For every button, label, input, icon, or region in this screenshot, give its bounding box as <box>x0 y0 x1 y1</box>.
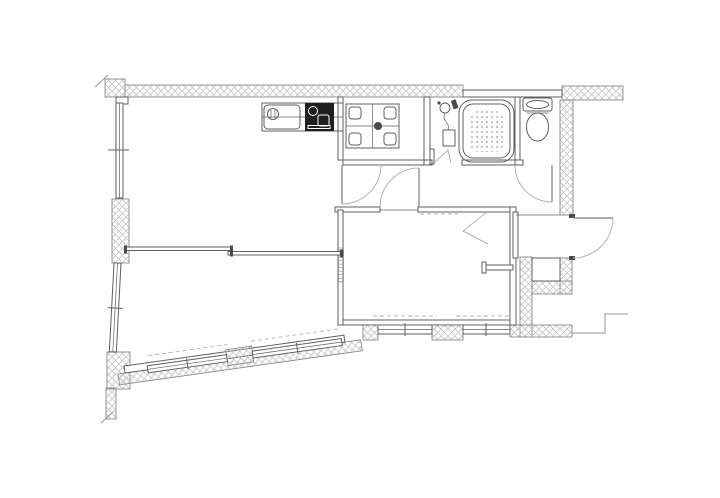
closet-chevron <box>463 212 488 244</box>
bath-mixer <box>443 130 455 146</box>
exterior-outline <box>572 314 628 333</box>
drain-icon <box>374 122 382 130</box>
wall-bottom-right-band <box>510 325 572 337</box>
entrance-door-swing <box>573 218 613 258</box>
wall-right-upper <box>560 100 573 215</box>
shower-head-icon <box>440 103 450 113</box>
sliding-track-2 <box>228 252 343 256</box>
wall-bedroom-north-east <box>418 207 513 212</box>
faucet-icon <box>268 109 279 120</box>
interior-doors <box>342 165 419 207</box>
wall-niche-bottom <box>532 281 572 294</box>
bathroom <box>430 99 514 164</box>
toilet-tank <box>523 98 552 111</box>
wall-genkan-edge <box>513 212 518 258</box>
wall-top-right-block <box>562 86 623 100</box>
wall-bedroom-south <box>343 320 510 325</box>
toilet-bowl <box>527 113 549 141</box>
wall-ldk-washroom <box>338 97 343 160</box>
wall-top-thin <box>463 90 562 97</box>
bathtub-antislip-dots <box>470 111 503 152</box>
shower-hose <box>444 113 449 130</box>
wall-stub-top-left <box>105 79 125 97</box>
wall-bath-toilet <box>515 97 520 165</box>
toilet-tank-basin <box>527 101 549 109</box>
wall-angled-mid-pier <box>226 346 254 365</box>
floor-plan-page <box>0 0 720 498</box>
closet-marks <box>420 212 488 244</box>
bath-folding-door <box>434 150 451 163</box>
toilet-room <box>515 98 552 202</box>
bedroom-door-swing <box>380 168 419 207</box>
washroom-door-swing <box>342 165 381 204</box>
floor-plan-canvas <box>0 0 720 498</box>
washroom <box>346 104 399 148</box>
meter-box-niche <box>532 258 560 281</box>
sliding-track-1 <box>125 247 232 251</box>
angled-south-wall <box>116 326 362 385</box>
entrance <box>569 214 613 260</box>
wall-washroom-south <box>343 160 427 165</box>
toilet-door-swing <box>515 165 552 202</box>
wall-top-band <box>125 85 463 97</box>
kitchen <box>262 103 343 131</box>
wall-stub-bedroom <box>485 265 513 270</box>
wall-washroom-bath <box>424 97 430 165</box>
